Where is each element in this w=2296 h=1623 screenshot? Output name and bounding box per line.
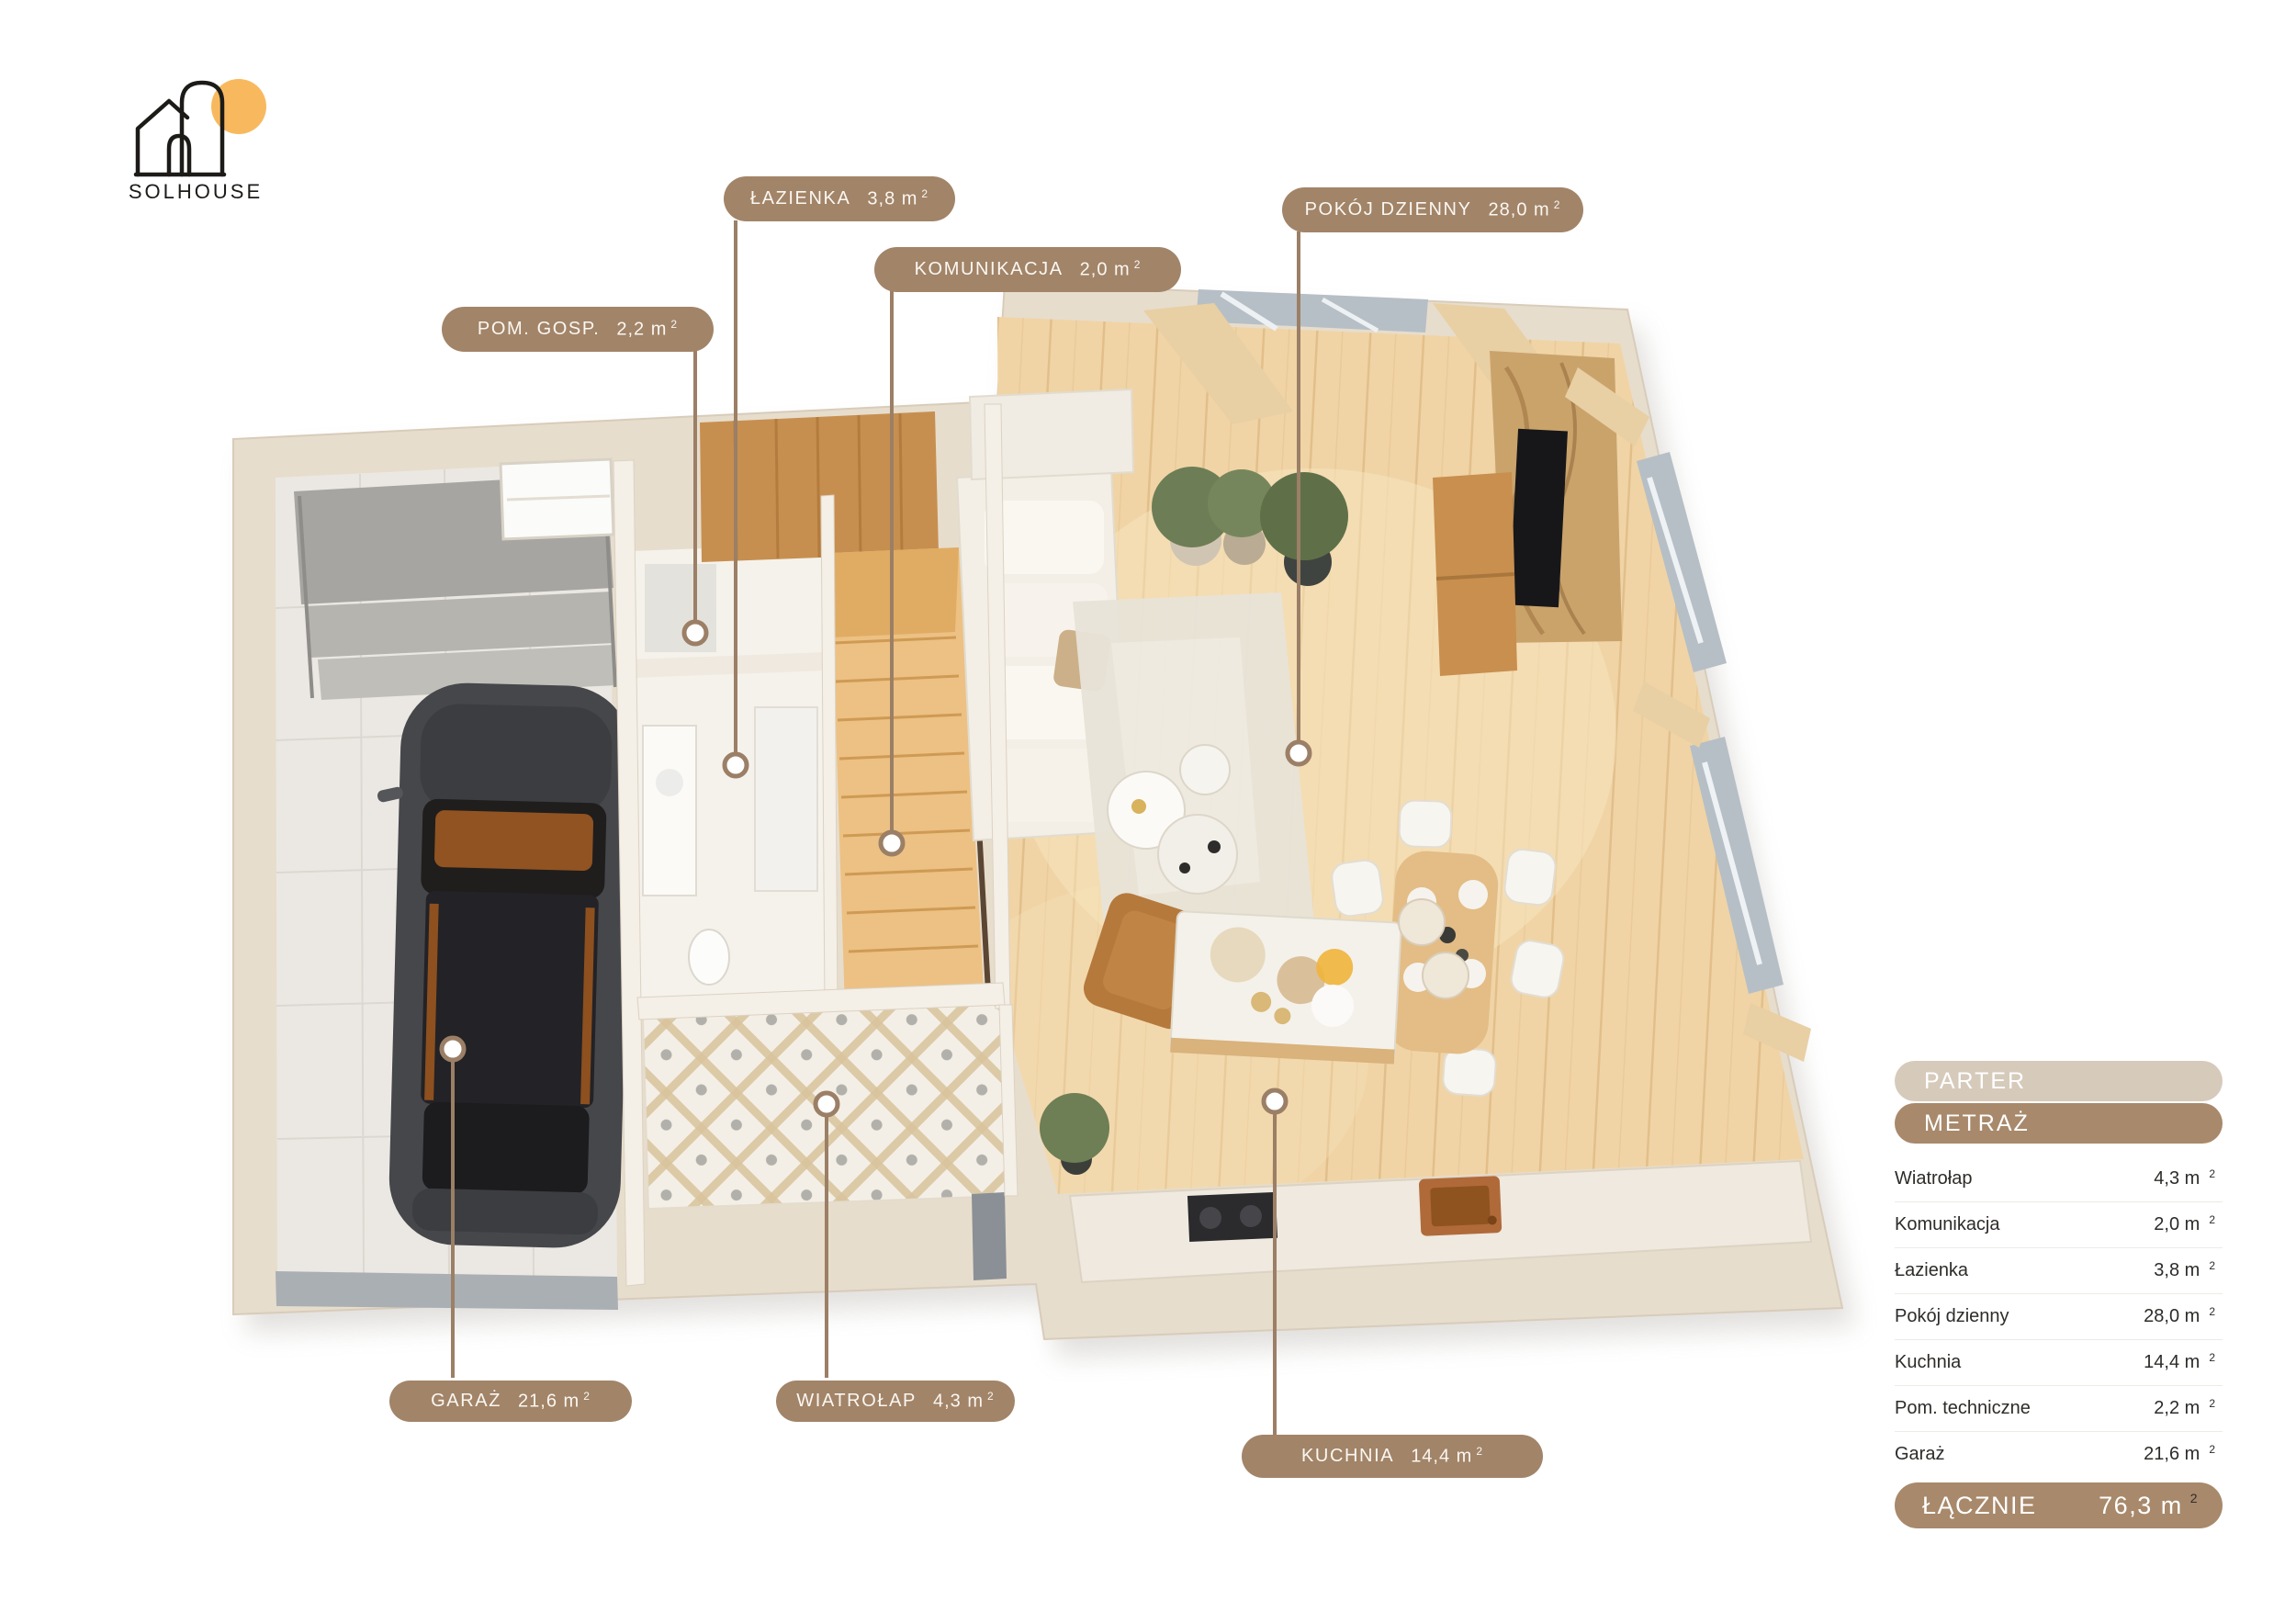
garage-door [276, 1271, 618, 1310]
room-name: POM. GOSP. [478, 319, 600, 340]
pokoj-endpoint [1288, 742, 1310, 764]
kitchen-island-icon [1170, 911, 1401, 1065]
table-row: Komunikacja 2,0 m2 [1895, 1202, 2223, 1248]
row-label: Łazienka [1895, 1260, 1968, 1281]
room-area: 14,4 m2 [1411, 1445, 1483, 1468]
area-table: Wiatrołap 4,3 m2 Komunikacja 2,0 m2 Łazi… [1895, 1156, 2223, 1477]
room-name: KUCHNIA [1301, 1446, 1394, 1467]
page: SOLHOUSE [0, 0, 2296, 1623]
car [365, 681, 657, 1250]
table-row: Garaż 21,6 m2 [1895, 1432, 2223, 1477]
row-label: Komunikacja [1895, 1214, 2000, 1235]
label-pill-kuchnia: KUCHNIA 14,4 m2 [1242, 1435, 1543, 1478]
utility-bathroom-rooms [632, 544, 830, 1014]
room-area: 28,0 m2 [1489, 198, 1561, 221]
room-area: 2,0 m2 [1080, 258, 1142, 281]
stool-icon [1399, 899, 1445, 945]
room-name: KOMUNIKACJA [915, 259, 1064, 280]
garaz-endpoint [442, 1038, 464, 1060]
row-value: 2,0 m2 [2154, 1214, 2223, 1235]
row-value: 14,4 m2 [2144, 1352, 2223, 1373]
skylight-icon [501, 459, 613, 539]
row-value: 2,2 m2 [2154, 1398, 2223, 1419]
label-pill-wiatrolap: WIATROŁAP 4,3 m2 [776, 1381, 1015, 1422]
row-value: 3,8 m2 [2154, 1260, 2223, 1281]
row-label: Wiatrołap [1895, 1168, 1972, 1189]
area-summary-panel: PARTER METRAŻ Wiatrołap 4,3 m2 Komunikac… [1895, 1061, 2223, 1528]
table-row: Łazienka 3,8 m2 [1895, 1248, 2223, 1294]
garage-room [276, 459, 657, 1310]
room-area: 3,8 m2 [867, 187, 929, 210]
lazienka-endpoint [725, 754, 747, 776]
pom-gosp-endpoint [684, 622, 706, 644]
sink-icon [1419, 1176, 1503, 1236]
total-value: 76,3 m2 [2099, 1492, 2199, 1520]
row-label: Pokój dzienny [1895, 1306, 2009, 1327]
table-row: Wiatrołap 4,3 m2 [1895, 1156, 2223, 1202]
total-row: ŁĄCZNIE 76,3 m2 [1895, 1482, 2223, 1528]
cooktop-icon [1187, 1192, 1277, 1242]
row-label: Garaż [1895, 1444, 1944, 1465]
room-name: POKÓJ DZIENNY [1305, 199, 1472, 220]
table-row: Kuchnia 14,4 m2 [1895, 1340, 2223, 1386]
table-row: Pom. techniczne 2,2 m2 [1895, 1386, 2223, 1432]
label-pill-pom-gosp: POM. GOSP. 2,2 m2 [442, 307, 714, 352]
room-name: WIATROŁAP [796, 1391, 917, 1412]
floor-badge: PARTER [1895, 1061, 2223, 1101]
stool-icon [1423, 952, 1469, 998]
label-pill-pokoj-dzienny: POKÓJ DZIENNY 28,0 m2 [1282, 187, 1583, 232]
row-value: 21,6 m2 [2144, 1444, 2223, 1465]
label-pill-garaz: GARAŻ 21,6 m2 [389, 1381, 632, 1422]
tv-icon [1509, 429, 1568, 608]
room-name: ŁAZIENKA [750, 188, 851, 209]
room-area: 21,6 m2 [518, 1390, 591, 1413]
total-label: ŁĄCZNIE [1922, 1492, 2037, 1520]
front-door [972, 1192, 1007, 1280]
kuchnia-endpoint [1264, 1090, 1286, 1112]
row-value: 28,0 m2 [2144, 1306, 2223, 1327]
room-name: GARAŻ [431, 1391, 501, 1412]
table-row: Pokój dzienny 28,0 m2 [1895, 1294, 2223, 1340]
room-area: 2,2 m2 [616, 318, 678, 341]
living-kitchen-room [928, 289, 1811, 1282]
table-header: METRAŻ [1895, 1103, 2223, 1144]
room-area: 4,3 m2 [933, 1390, 995, 1413]
label-pill-lazienka: ŁAZIENKA 3,8 m2 [724, 176, 955, 221]
row-label: Kuchnia [1895, 1352, 1961, 1373]
wiatrolap-endpoint [816, 1093, 838, 1115]
label-pill-komunikacja: KOMUNIKACJA 2,0 m2 [874, 247, 1181, 292]
row-value: 4,3 m2 [2154, 1168, 2223, 1189]
komunikacja-endpoint [881, 832, 903, 854]
row-label: Pom. techniczne [1895, 1398, 2031, 1419]
